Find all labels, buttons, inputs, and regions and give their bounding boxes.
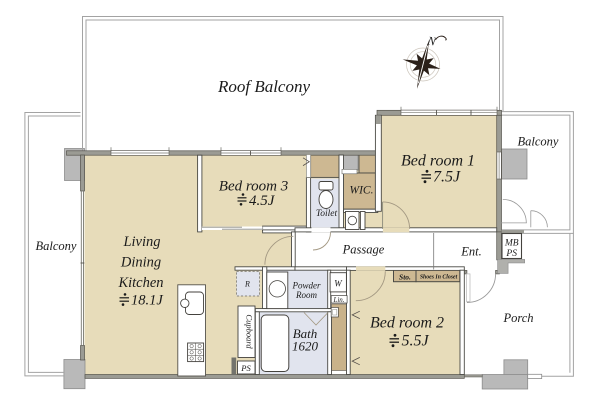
svg-text:Powder: Powder [292, 281, 321, 291]
svg-text:Bed room 2: Bed room 2 [370, 315, 444, 332]
svg-text:Balcony: Balcony [36, 239, 77, 253]
svg-text:Porch: Porch [502, 311, 533, 325]
svg-text:7.5J: 7.5J [433, 169, 461, 186]
svg-text:Kitchen: Kitchen [117, 275, 163, 291]
svg-text:R: R [244, 280, 250, 289]
svg-text:Dining: Dining [120, 255, 161, 271]
svg-text:Lin.: Lin. [332, 296, 344, 304]
svg-text:Passage: Passage [342, 243, 385, 257]
svg-text:Room: Room [295, 290, 317, 300]
svg-text:Balcony: Balcony [518, 135, 559, 149]
svg-text:Cupboard: Cupboard [245, 314, 255, 349]
svg-text:Roof Balcony: Roof Balcony [217, 77, 311, 96]
svg-text:PS: PS [240, 363, 251, 373]
svg-text:PS: PS [505, 249, 517, 259]
svg-text:18.1J: 18.1J [131, 293, 163, 309]
svg-text:Sto.: Sto. [399, 273, 411, 282]
svg-text:Living: Living [122, 234, 160, 250]
svg-text:Shoes In Closet: Shoes In Closet [420, 275, 458, 281]
svg-text:WIC.: WIC. [350, 185, 374, 197]
svg-text:Toilet: Toilet [316, 209, 338, 219]
svg-text:5.5J: 5.5J [402, 333, 430, 350]
svg-text:1620: 1620 [292, 339, 319, 354]
svg-text:Ent.: Ent. [460, 245, 481, 259]
svg-text:4.5J: 4.5J [249, 193, 276, 209]
svg-text:MB: MB [504, 239, 519, 249]
svg-text:Bed room 1: Bed room 1 [401, 153, 475, 170]
